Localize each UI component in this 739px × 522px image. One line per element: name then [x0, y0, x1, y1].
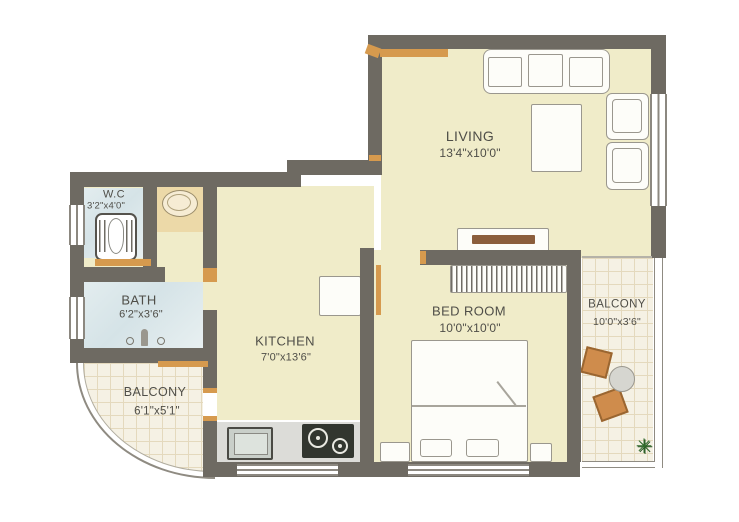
- toilet-side: [99, 220, 106, 252]
- blanket-line: [412, 405, 526, 407]
- wc-window: [69, 205, 85, 245]
- room-dims-bedroom: 10'0"x10'0": [439, 322, 500, 334]
- balcony-left-door-jamb: [203, 416, 217, 421]
- toilet-bowl: [108, 218, 124, 254]
- stove-burner: [332, 438, 348, 454]
- wall: [368, 49, 382, 161]
- wall: [420, 250, 581, 265]
- room-dims-wc: 3'2"x4'0": [87, 201, 125, 211]
- stove-burner: [308, 428, 328, 448]
- entrance-door-leaf: [380, 49, 448, 57]
- wall: [360, 248, 374, 462]
- bedside-table: [530, 443, 552, 462]
- sink: [227, 427, 273, 460]
- wash-basin: [162, 190, 198, 217]
- double-bed: [411, 340, 528, 462]
- tv-unit: [457, 228, 549, 252]
- shower-tap: [157, 337, 165, 345]
- room-dims-balcony-right: 10'0"x3'6": [593, 317, 641, 328]
- toilet: [95, 213, 137, 261]
- armchair-cushion: [612, 148, 642, 183]
- room-dims-balcony-left: 6'1"x5'1": [134, 406, 180, 418]
- living-door-jamb: [369, 155, 381, 161]
- bath-window: [69, 297, 85, 339]
- bedside-table: [380, 442, 410, 462]
- coffee-table: [531, 104, 582, 172]
- wall: [651, 206, 666, 258]
- bedroom-window: [408, 464, 529, 476]
- toilet-side: [126, 220, 133, 252]
- balcony-right-edge: [582, 256, 652, 258]
- pillow: [466, 439, 499, 457]
- room-dims-living: 13'4"x10'0": [439, 147, 500, 159]
- sofa-cushion: [488, 57, 522, 87]
- room-label-wc: W.C: [103, 190, 125, 201]
- balcony-left-door-opening: [203, 392, 217, 416]
- blanket-fold: [497, 381, 517, 406]
- room-label-balcony-right: BALCONY: [588, 299, 646, 311]
- sink-basin: [234, 433, 268, 455]
- room-dims-bath: 6'2"x3'6": [119, 310, 163, 321]
- stove: [302, 424, 354, 458]
- sofa-cushion: [569, 57, 603, 87]
- wall: [70, 267, 165, 282]
- wall: [287, 160, 382, 175]
- wc-door-threshold: [95, 259, 151, 266]
- balcony-left-door-jamb: [203, 388, 217, 393]
- room-dims-kitchen: 7'0"x13'6": [261, 353, 311, 364]
- armchair: [606, 93, 649, 140]
- balcony-left-area: [76, 363, 215, 479]
- room-label-living: LIVING: [446, 129, 494, 143]
- sofa: [483, 49, 610, 94]
- balcony-left-door-threshold: [158, 361, 208, 367]
- shower-tap: [126, 337, 134, 345]
- bath-door-jamb: [203, 268, 217, 282]
- tv-screen: [472, 235, 535, 244]
- pillow: [420, 439, 452, 457]
- plant-icon: ✳: [633, 436, 655, 458]
- sofa-cushion: [528, 54, 563, 87]
- refrigerator: [319, 276, 361, 316]
- balcony-table: [609, 366, 635, 392]
- wash-basin-bowl: [167, 194, 191, 211]
- room-label-bedroom: BED ROOM: [432, 305, 506, 318]
- room-label-balcony-left: BALCONY: [124, 386, 187, 399]
- room-label-bath: BATH: [121, 294, 156, 307]
- armchair-cushion: [612, 99, 642, 133]
- wall: [368, 35, 666, 49]
- kitchen-window: [237, 464, 338, 476]
- bedroom-door-jamb: [420, 251, 426, 264]
- bedroom-door-leaf: [376, 265, 381, 315]
- floor-plan: ✳ LIVING 13'4"x10'0" W.C 3'2"x4'0" BATH …: [0, 0, 739, 522]
- wall: [203, 172, 217, 282]
- wall: [217, 172, 301, 187]
- wall: [143, 172, 157, 267]
- wardrobe: [450, 265, 567, 293]
- shower-head: [141, 329, 148, 346]
- wall: [651, 49, 666, 94]
- wall: [567, 250, 581, 462]
- balcony-right-railing: [582, 461, 655, 468]
- living-window: [650, 94, 667, 206]
- room-label-kitchen: KITCHEN: [255, 335, 315, 348]
- balcony-right-railing: [654, 258, 663, 468]
- armchair: [606, 142, 649, 190]
